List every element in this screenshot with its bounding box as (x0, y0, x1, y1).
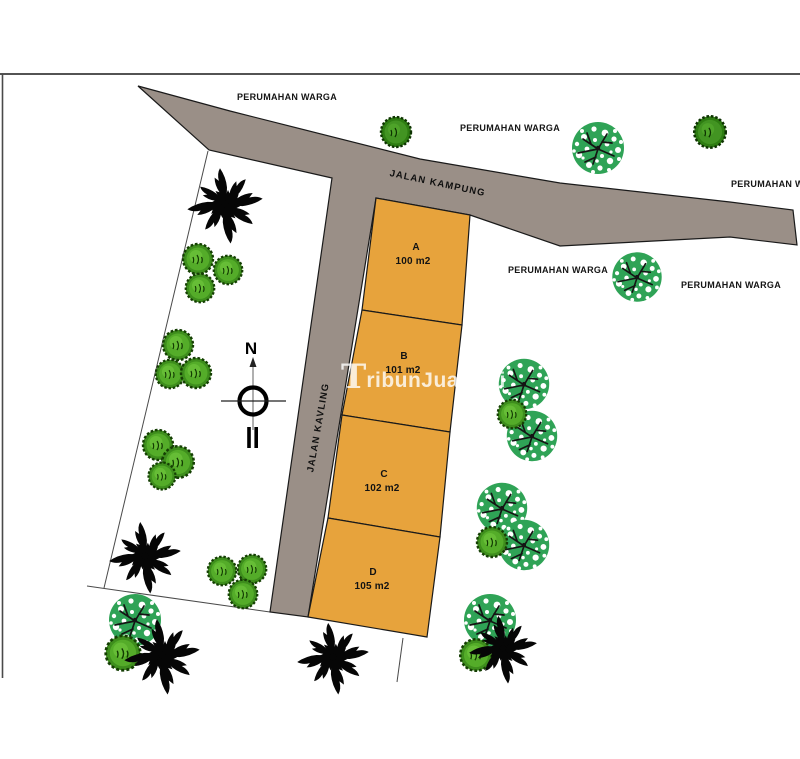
plot-D-id: D (369, 567, 376, 578)
palm-tree-icon (187, 168, 264, 245)
bush-tree-icon (163, 330, 193, 360)
speckled-tree-icon (612, 252, 661, 301)
site-plan-svg: A 100 m2 B 101 m2 C 102 m2 D 105 m2 JALA… (0, 0, 800, 759)
bush-tree-icon (694, 116, 726, 148)
north-label: N (245, 339, 257, 358)
site-plan-image: A 100 m2 B 101 m2 C 102 m2 D 105 m2 JALA… (0, 0, 800, 759)
bush-tree-icon (229, 580, 258, 609)
plot-C (328, 415, 450, 537)
bush-tree-icon (149, 463, 176, 490)
surrounding-label-1: PERUMAHAN WARGA (237, 92, 337, 102)
bush-tree-icon (208, 557, 237, 586)
bush-tree-icon (181, 358, 211, 388)
compass-arrow-icon (250, 357, 257, 367)
plot-A-id: A (412, 242, 419, 253)
bush-tree-icon (381, 117, 411, 147)
surrounding-label-2: PERUMAHAN WARGA (460, 123, 560, 133)
bush-tree-icon (214, 256, 243, 285)
watermark-rest: ribunJualBeli (366, 369, 506, 392)
parcel-boundary-line-stub (397, 638, 403, 682)
speckled-tree-icon (572, 122, 624, 174)
bush-tree-icon (498, 400, 527, 429)
surrounding-label-3: PERUMAHAN WARGA (731, 179, 800, 189)
bush-tree-icon (186, 274, 215, 303)
bush-tree-icon (477, 527, 507, 557)
surrounding-label-5: PERUMAHAN WARGA (681, 280, 781, 290)
compass-bar-icon (254, 427, 258, 448)
surrounding-label-4: PERUMAHAN WARGA (508, 265, 608, 275)
compass-north-indicator: N (221, 339, 286, 448)
plot-D-area: 105 m2 (354, 581, 389, 592)
watermark-initial: T (341, 357, 366, 397)
plot-B-id: B (400, 351, 407, 362)
palm-tree-icon (297, 622, 370, 695)
plot-C-area: 102 m2 (364, 483, 399, 494)
compass-bar-icon (247, 427, 251, 448)
plot-C-id: C (380, 469, 387, 480)
road-network (138, 86, 797, 617)
palm-tree-icon (109, 521, 182, 594)
bush-tree-icon (183, 244, 213, 274)
plot-A-area: 100 m2 (395, 256, 430, 267)
